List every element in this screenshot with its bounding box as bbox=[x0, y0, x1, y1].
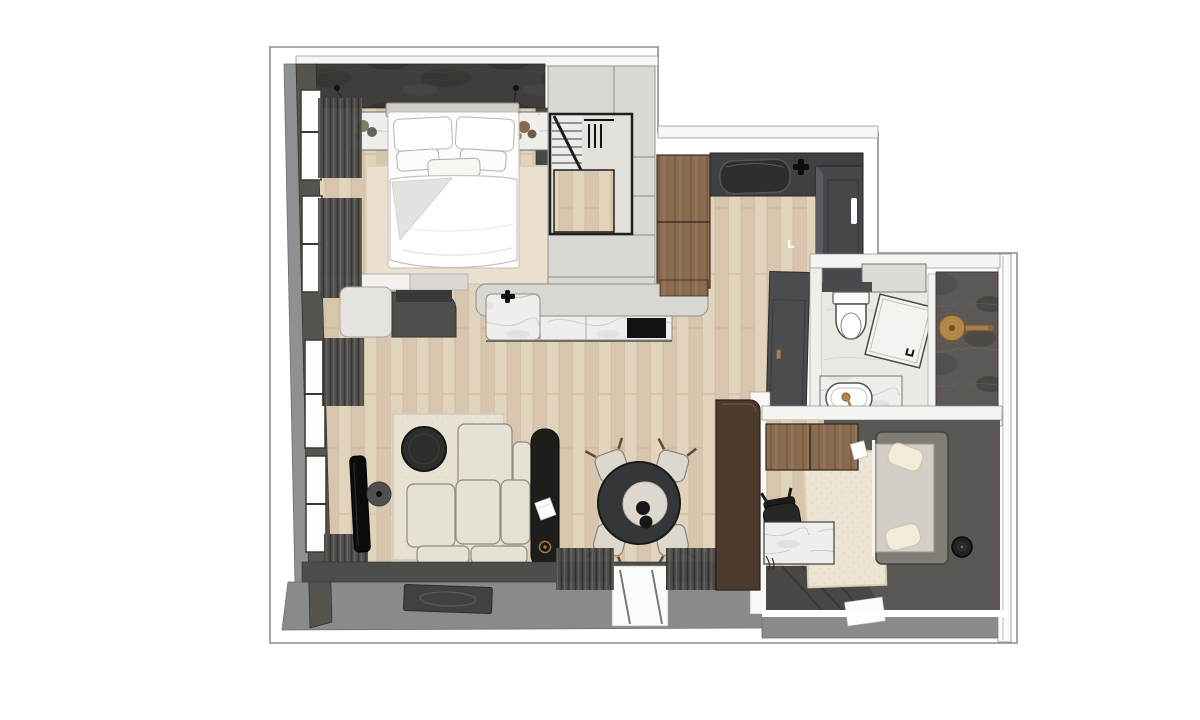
floor-plan-svg bbox=[0, 0, 1200, 720]
doormat bbox=[404, 584, 493, 613]
floor-lamp bbox=[367, 482, 391, 506]
pillow bbox=[393, 117, 453, 152]
robot-vacuum bbox=[952, 537, 972, 557]
fridge-handle bbox=[851, 198, 857, 224]
shower-area bbox=[936, 272, 998, 424]
bedroom-door-threshold bbox=[410, 274, 468, 290]
double-bed bbox=[386, 103, 519, 268]
curtain bbox=[322, 338, 364, 406]
island-cooktop bbox=[627, 318, 666, 338]
study-terrace-white-band bbox=[762, 610, 1008, 617]
study-north-wall bbox=[762, 406, 1002, 420]
black-chaise bbox=[531, 429, 559, 568]
partition-wardrobe bbox=[716, 392, 770, 614]
marble-desk bbox=[764, 522, 834, 570]
study-wood-cabinets bbox=[766, 424, 858, 470]
study bbox=[759, 406, 1008, 626]
curtain bbox=[318, 98, 362, 178]
island-wood-section bbox=[660, 280, 708, 296]
stair-landing-wood bbox=[554, 170, 614, 232]
table-vase bbox=[636, 501, 650, 515]
curtain bbox=[556, 548, 614, 590]
hallway-cabinet bbox=[766, 271, 810, 414]
shower-divider-wall bbox=[928, 274, 936, 424]
stair-treads bbox=[552, 116, 582, 170]
table-vase bbox=[640, 516, 653, 529]
curtain bbox=[318, 198, 362, 298]
island-marble-column bbox=[486, 294, 540, 340]
floor-plan-canvas bbox=[0, 0, 1200, 720]
kitchen-sink bbox=[719, 159, 790, 194]
lounge-sofa bbox=[872, 432, 948, 564]
vanity-desk bbox=[340, 287, 456, 337]
cabinet-gold-handle bbox=[777, 350, 781, 359]
living-window-2 bbox=[306, 456, 326, 552]
staircase bbox=[548, 66, 655, 290]
pillow bbox=[455, 117, 515, 152]
